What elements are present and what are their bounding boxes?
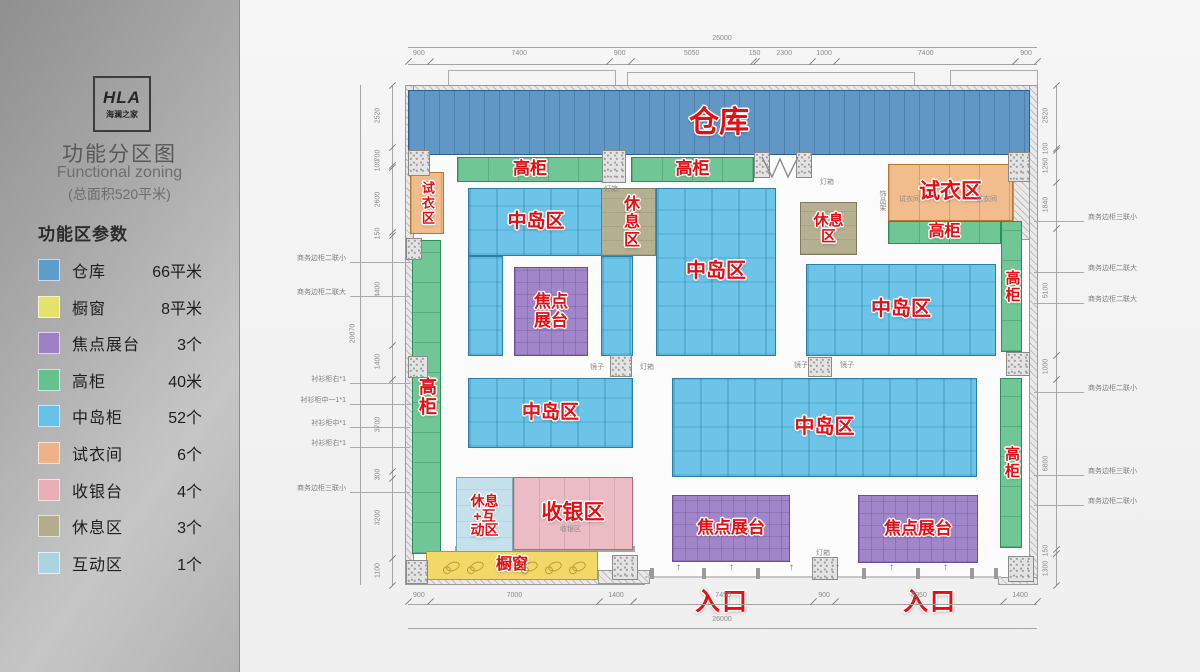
legend-value: 6个	[177, 441, 202, 465]
leader-label-right-6: 商务边柜二联小	[1088, 496, 1137, 506]
dim-value: 3200	[375, 508, 382, 528]
dim-value: 1000	[816, 50, 832, 57]
leader-label-left-4: 衬衫柜中一1*1	[256, 395, 346, 405]
door-swing-icon	[760, 155, 800, 181]
entrance-label-1: 入口	[695, 582, 749, 618]
zone-label-island-1: 中岛区	[507, 212, 564, 232]
zone-focal-2: 焦点展台	[672, 495, 790, 562]
legend-item-7: 收银台4个	[38, 478, 202, 502]
zone-fitting-right: 试衣区	[888, 164, 1013, 221]
column-2	[602, 150, 626, 183]
column-9	[1006, 352, 1030, 376]
dim-line	[392, 85, 393, 585]
zone-fitting-left: 试衣区	[410, 172, 444, 234]
zone-island-1-left	[468, 256, 503, 356]
dim-line	[408, 64, 1037, 65]
legend-item-2: 橱窗8平米	[38, 295, 202, 319]
leader-line	[1034, 475, 1084, 476]
leader-label-left-7: 商务边柜三联小	[256, 483, 346, 493]
column-13	[610, 355, 632, 377]
legend-item-8: 休息区3个	[38, 514, 202, 538]
column-5	[1008, 152, 1030, 182]
leader-label-left-1: 商务边柜二联小	[256, 253, 346, 263]
outer-bay-1	[448, 70, 616, 86]
legend-swatch	[38, 515, 60, 537]
legend-item-9: 互动区1个	[38, 551, 202, 575]
leader-label-right-1: 商务边柜三联小	[1088, 212, 1137, 222]
zone-cabinet-top-left: 高柜	[457, 157, 603, 182]
column-6	[406, 238, 422, 260]
zone-cabinet-left-v: 高柜	[412, 240, 441, 554]
zone-island-5: 中岛区	[672, 378, 977, 477]
dim-value: 1300	[1043, 558, 1050, 578]
dim-value: 7000	[507, 592, 523, 599]
zone-cabinet-right-h: 高柜	[888, 221, 1001, 244]
leader-line	[350, 447, 410, 448]
legend-item-4: 高柜40米	[38, 368, 202, 392]
column-8	[406, 560, 428, 584]
zone-island-1-right	[601, 256, 633, 356]
leader-label-right-4: 商务边柜二联小	[1088, 383, 1137, 393]
legend-swatch	[38, 332, 60, 354]
dim-value: 7400	[918, 50, 934, 57]
leader-line	[350, 383, 410, 384]
legend-value: 3个	[177, 514, 202, 538]
leader-label-left-6: 衬衫柜右*1	[256, 438, 346, 448]
zone-island-3: 中岛区	[806, 264, 996, 356]
small-label-1: 灯箱	[604, 184, 618, 194]
dim-line	[408, 628, 1037, 629]
dim-value: 1400	[1012, 592, 1028, 599]
door-post-3	[756, 568, 760, 579]
logo-subtext: 海澜之家	[106, 109, 138, 120]
sidebar: HLA 海澜之家 功能分区图 Functional zoning (总面积520…	[0, 0, 240, 672]
dim-value: 300	[375, 464, 382, 484]
legend-swatch	[38, 442, 60, 464]
legend-swatch	[38, 259, 60, 281]
legend-value: 52个	[168, 404, 202, 428]
dim-tick	[1034, 58, 1041, 65]
leader-line	[350, 404, 410, 405]
entrance-arrow-icon-4: ↑	[835, 562, 840, 573]
dim-value: 900	[818, 592, 830, 599]
zone-label-fitting-right: 试衣区	[919, 181, 982, 203]
dim-value: 1840	[1043, 194, 1050, 214]
legend-swatch	[38, 296, 60, 318]
door-post-2	[702, 568, 706, 579]
small-label-10: 试衣间	[976, 194, 997, 204]
legend-label: 休息区	[72, 514, 123, 538]
zone-label-cabinet-top-left: 高柜	[513, 160, 547, 178]
dim-value: 1400	[375, 351, 382, 371]
small-label-5: 镜子	[794, 360, 808, 370]
small-label-8: 饰品架	[877, 190, 887, 211]
column-7	[408, 356, 428, 378]
dim-value: 1000	[1043, 357, 1050, 377]
zone-cabinet-right-v1: 高柜	[1001, 221, 1022, 352]
dim-value: 7400	[511, 50, 527, 57]
zone-rest-2: 休息区	[800, 202, 857, 255]
dim-line	[1056, 85, 1057, 585]
zone-label-island-3: 中岛区	[871, 299, 931, 320]
dim-value: 100	[375, 156, 382, 176]
dim-value: 900	[614, 50, 626, 57]
legend-heading: 功能区参数	[38, 220, 128, 245]
legend-label: 中岛柜	[72, 404, 123, 428]
dim-total-left: 20070	[350, 319, 357, 349]
dim-value: 7450	[715, 592, 731, 599]
dim-line	[360, 85, 361, 585]
legend-label: 互动区	[72, 551, 123, 575]
entrance-label-2: 入口	[903, 582, 957, 618]
leader-line	[1034, 221, 1084, 222]
dim-value: 6800	[1043, 454, 1050, 474]
legend-label: 仓库	[72, 258, 106, 282]
leader-line	[350, 492, 410, 493]
zone-island-4: 中岛区	[468, 378, 633, 448]
entrance-arrow-icon-5: ↑	[889, 562, 894, 573]
small-label-6: 镜子	[840, 360, 854, 370]
dim-value: 1100	[375, 561, 382, 581]
legend-item-1: 仓库66平米	[38, 258, 202, 282]
outer-bay-2	[627, 72, 915, 86]
zone-label-island-5: 中岛区	[795, 417, 855, 438]
legend-label: 高柜	[72, 368, 106, 392]
leader-line	[1034, 303, 1084, 304]
dim-value: 1260	[1043, 155, 1050, 175]
entrance-arrow-icon-6: ↑	[943, 562, 948, 573]
legend-item-5: 中岛柜52个	[38, 404, 202, 428]
zone-label-warehouse: 仓库	[689, 107, 749, 139]
zone-label-focal-1: 焦点展台	[531, 293, 570, 329]
dim-value: 5050	[684, 50, 700, 57]
door-post-6	[970, 568, 974, 579]
legend-value: 40米	[168, 368, 202, 392]
leader-label-right-5: 商务边柜三联小	[1088, 466, 1137, 476]
legend-swatch	[38, 369, 60, 391]
dim-value: 1400	[608, 592, 624, 599]
dim-line	[408, 47, 1037, 48]
zone-island-1: 中岛区	[468, 188, 604, 256]
dim-value: 3700	[375, 415, 382, 435]
zone-label-fitting-left: 试衣区	[420, 181, 434, 226]
leader-label-left-2: 商务边柜二联大	[256, 287, 346, 297]
zone-label-cabinet-right-v2: 高柜	[1003, 446, 1019, 480]
small-label-7: 灯箱	[816, 548, 830, 558]
zone-label-focal-3: 焦点展台	[884, 520, 952, 538]
legend-label: 试衣间	[72, 441, 123, 465]
leader-line	[1034, 505, 1084, 506]
zone-label-focal-2: 焦点展台	[697, 519, 765, 537]
door-post-7	[994, 568, 998, 579]
zone-cabinet-top-right: 高柜	[631, 157, 754, 182]
zone-label-cabinet-left-v: 高柜	[417, 377, 436, 417]
dim-value: 5100	[1043, 281, 1050, 301]
legend-value: 1个	[177, 551, 202, 575]
legend-label: 收银台	[72, 478, 123, 502]
zone-focal-1: 焦点展台	[514, 267, 588, 356]
zone-label-rest-interactive: 休息+互动区	[468, 494, 500, 538]
dim-value: 2520	[375, 106, 382, 126]
leader-line	[1034, 392, 1084, 393]
dim-value: 150	[749, 50, 761, 57]
column-14	[808, 357, 832, 377]
dim-value: 2520	[1043, 106, 1050, 126]
dim-total-top: 26000	[712, 35, 731, 42]
door-post-5	[916, 568, 920, 579]
legend-item-3: 焦点展台3个	[38, 331, 202, 355]
leader-line	[350, 296, 410, 297]
door-post-4	[862, 568, 866, 579]
legend-value: 4个	[177, 478, 202, 502]
legend-item-6: 试衣间6个	[38, 441, 202, 465]
zone-label-island-4: 中岛区	[522, 403, 579, 423]
zone-rest-interactive: 休息+互动区	[456, 477, 513, 555]
page-subtitle: Functional zoning	[0, 164, 239, 182]
dim-value: 900	[1020, 50, 1032, 57]
zone-island-2: 中岛区	[656, 188, 776, 356]
dim-tick	[389, 582, 396, 589]
legend-value: 3个	[177, 331, 202, 355]
small-label-4: 灯箱	[640, 362, 654, 372]
leader-label-left-5: 衬衫柜中*1	[256, 418, 346, 428]
zone-label-cabinet-right-v1: 高柜	[1004, 270, 1020, 304]
leader-line	[350, 262, 410, 263]
dim-value: 150	[375, 223, 382, 243]
zone-label-rest-2: 休息区	[811, 213, 846, 245]
door-post-1	[650, 568, 654, 579]
leader-line	[350, 427, 410, 428]
column-1	[408, 150, 430, 176]
entrance-arrow-icon-3: ↑	[789, 562, 794, 573]
dim-value: 900	[413, 50, 425, 57]
zone-rest-1: 休息区	[601, 188, 656, 256]
zone-focal-3: 焦点展台	[858, 495, 978, 563]
small-label-11: 收银区	[560, 524, 581, 534]
legend-value: 8平米	[161, 295, 202, 319]
entrance-arrow-icon-2: ↑	[729, 562, 734, 573]
leader-label-right-2: 商务边柜二联大	[1088, 263, 1137, 273]
wall-3	[1029, 85, 1038, 585]
logo-text: HLA	[103, 88, 141, 108]
zone-label-cabinet-right-h: 高柜	[928, 224, 960, 241]
small-label-3: 镜子	[590, 362, 604, 372]
dim-value: 900	[413, 592, 425, 599]
legend-label: 焦点展台	[72, 331, 140, 355]
small-label-9: 试衣间	[899, 194, 920, 204]
legend-swatch	[38, 552, 60, 574]
column-10	[1008, 556, 1034, 582]
dim-value: 150	[1043, 540, 1050, 560]
legend-swatch	[38, 405, 60, 427]
dim-line	[408, 604, 1037, 605]
small-label-2: 灯箱	[820, 177, 834, 187]
total-area: (总面积520平米)	[0, 184, 239, 204]
zone-cashier: 收银区	[513, 477, 633, 550]
dim-value: 2600	[375, 189, 382, 209]
entrance-arrow-icon-1: ↑	[676, 562, 681, 573]
dim-tick	[1053, 582, 1060, 589]
leader-label-left-3: 衬衫柜右*1	[256, 374, 346, 384]
dim-tick	[1034, 598, 1041, 605]
zone-cabinet-right-v2: 高柜	[1000, 378, 1022, 548]
dim-value: 2300	[776, 50, 792, 57]
column-11	[612, 555, 638, 580]
hla-logo: HLA 海澜之家	[93, 76, 151, 132]
zone-label-rest-1: 休息区	[620, 195, 637, 249]
zone-label-cabinet-top-right: 高柜	[676, 160, 710, 178]
leader-label-right-3: 商务边柜二联大	[1088, 294, 1137, 304]
zone-warehouse: 仓库	[408, 90, 1030, 155]
dim-value: 6950	[911, 592, 927, 599]
leader-line	[1034, 272, 1084, 273]
legend-swatch	[38, 479, 60, 501]
legend-value: 66平米	[152, 258, 202, 282]
dim-total-bottom: 26000	[712, 616, 731, 623]
legend-label: 橱窗	[72, 295, 106, 319]
zone-label-island-2: 中岛区	[686, 261, 746, 282]
outer-bay-3	[950, 70, 1038, 86]
zone-label-cashier: 收银区	[542, 502, 605, 524]
